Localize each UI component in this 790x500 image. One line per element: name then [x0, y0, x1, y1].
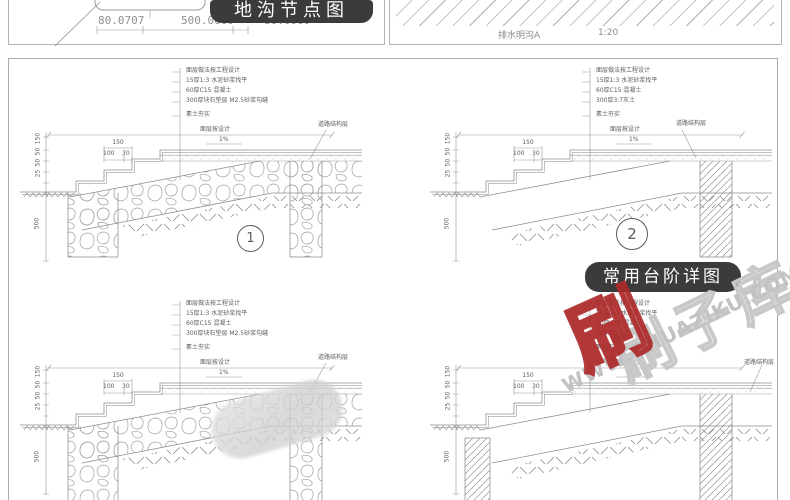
- slope-label: 1%: [629, 136, 639, 143]
- detail-number-badge: 2: [616, 218, 648, 250]
- road-layer-label: 道路结构层: [676, 118, 706, 127]
- depth-dim: 500: [444, 448, 451, 466]
- road-layer-label: 道路结构层: [318, 119, 348, 128]
- slope-label: 1%: [219, 136, 229, 143]
- riser-dim: 25: [445, 166, 452, 182]
- detail-1-labels: 面层做法按工程设计 15厚1:3 水泥砂浆找平 60厚C15 混凝土 300厚块…: [10, 62, 376, 274]
- depth-dim: 500: [444, 215, 451, 233]
- tooltip-badge-ditch-label: 地沟节点图: [234, 0, 349, 21]
- dim-horizontal: 30: [122, 150, 130, 157]
- dim-horizontal: 100: [513, 383, 524, 390]
- callout-line: 面层做法按工程设计: [186, 298, 240, 307]
- callout-line: 面层做法按工程设计: [596, 65, 650, 74]
- riser-dim: 25: [35, 399, 42, 415]
- callout-line: 素土夯实: [186, 109, 210, 118]
- callout-line: 300厚块石垫层 M2.5砂浆勾缝: [186, 95, 268, 104]
- detail-number-badge: 1: [237, 225, 264, 252]
- detail-2-labels: 面层做法按工程设计 15厚1:3 水泥砂浆找平 60厚C15 混凝土 300厚3…: [420, 62, 786, 274]
- width-label: 面层按设计: [200, 124, 230, 133]
- riser-dim: 25: [445, 399, 452, 415]
- road-layer-label: 道路结构层: [744, 357, 774, 366]
- dim-horizontal: 100: [103, 383, 114, 390]
- detail-number: 1: [246, 231, 254, 246]
- tread-dim: 150: [510, 372, 546, 379]
- road-layer-label: 道路结构层: [318, 352, 348, 361]
- depth-dim: 500: [34, 215, 41, 233]
- callout-line: 300厚块石垫层 M2.5砂浆勾缝: [186, 328, 268, 337]
- width-label: 面层按设计: [610, 124, 640, 133]
- depth-dim: 500: [34, 448, 41, 466]
- callout-line: 素土夯实: [596, 109, 620, 118]
- callout-line: 60厚C15 混凝土: [186, 85, 231, 94]
- tread-dim: 150: [100, 372, 136, 379]
- tooltip-badge-ditch: 地沟节点图: [210, 0, 373, 23]
- callout-line: 15厚1:3 水泥砂浆找平: [186, 75, 247, 84]
- tread-dim: 150: [510, 139, 546, 146]
- callout-line: 60厚C15 混凝土: [186, 318, 231, 327]
- dim-horizontal: 30: [532, 150, 540, 157]
- callout-line: 面层做法按工程设计: [186, 65, 240, 74]
- callout-line: 15厚1:3 水泥砂浆找平: [596, 75, 657, 84]
- dim-horizontal: 100: [103, 150, 114, 157]
- detail-number: 2: [627, 225, 637, 243]
- tread-dim: 150: [100, 139, 136, 146]
- callout-line: 60厚C15 混凝土: [596, 85, 641, 94]
- dim-horizontal: 100: [513, 150, 524, 157]
- riser-dim: 25: [35, 166, 42, 182]
- width-label: 面层按设计: [200, 357, 230, 366]
- callout-line: 300厚3:7灰土: [596, 95, 635, 104]
- callout-line: 15厚1:3 水泥砂浆找平: [186, 308, 247, 317]
- callout-line: 素土夯实: [186, 342, 210, 351]
- dim-horizontal: 30: [122, 383, 130, 390]
- dim-horizontal: 30: [532, 383, 540, 390]
- cad-sheet: 80.0707 500.0000 80.0000 排水明沟A 1:20: [0, 0, 790, 500]
- slope-label: 1%: [219, 369, 229, 376]
